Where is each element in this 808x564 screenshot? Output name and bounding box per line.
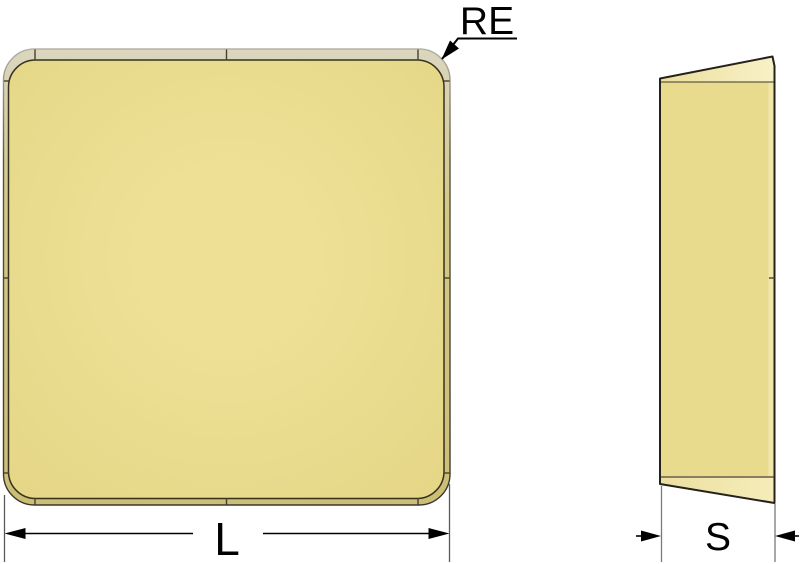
bottom-bevel-face [660, 477, 775, 503]
front-view [4, 49, 451, 505]
corner-radius-label: RE [460, 0, 514, 43]
insert-technical-drawing: RE L [0, 0, 808, 564]
length-label: L [214, 513, 240, 564]
leader-arrowhead [442, 41, 460, 60]
corner-radius-callout: RE [442, 0, 518, 60]
left-arrowhead [641, 531, 661, 542]
left-arrowhead [5, 528, 26, 539]
insert-top-face [9, 60, 445, 499]
side-silhouette-fill [660, 57, 775, 504]
side-view [660, 57, 775, 504]
drawing-svg: RE L [0, 0, 808, 564]
right-arrowhead [775, 531, 795, 542]
thickness-label: S [705, 516, 731, 559]
right-arrowhead [429, 528, 450, 539]
